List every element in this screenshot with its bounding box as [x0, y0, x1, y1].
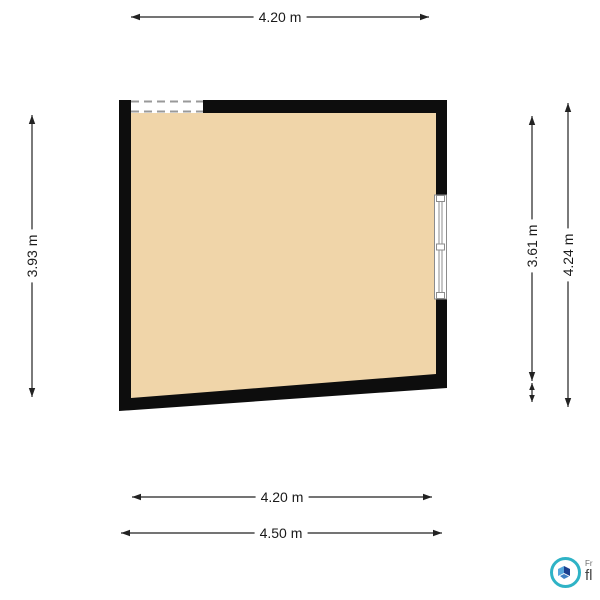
- dimension-label-left-height: 3.93 m: [23, 230, 41, 283]
- dimension-label-bottom-outer-width: 4.50 m: [255, 524, 308, 542]
- dimension-label-top-width: 4.20 m: [254, 8, 307, 26]
- map-icon: [557, 565, 574, 580]
- dimension-label-bottom-inner-width: 4.20 m: [256, 488, 309, 506]
- dimension-label-right-inner-height: 3.61 m: [523, 220, 541, 273]
- floorplanner-logo-ring-icon: [550, 557, 581, 588]
- floorplan-drawing: [0, 0, 600, 600]
- window-right: [435, 195, 447, 299]
- room-floor: [131, 113, 436, 398]
- logo-text-large-fragment: fl: [585, 568, 593, 585]
- floorplanner-logo-text: Fr fl: [585, 560, 593, 585]
- window-opening-top: [131, 100, 203, 113]
- dimension-right-small-segment: [529, 383, 535, 402]
- floorplan-canvas: 4.20 m 3.93 m 3.61 m 4.24 m 4.20 m 4.50 …: [0, 0, 600, 600]
- dimension-label-right-outer-height: 4.24 m: [559, 229, 577, 282]
- floorplanner-watermark: Fr fl: [550, 557, 593, 588]
